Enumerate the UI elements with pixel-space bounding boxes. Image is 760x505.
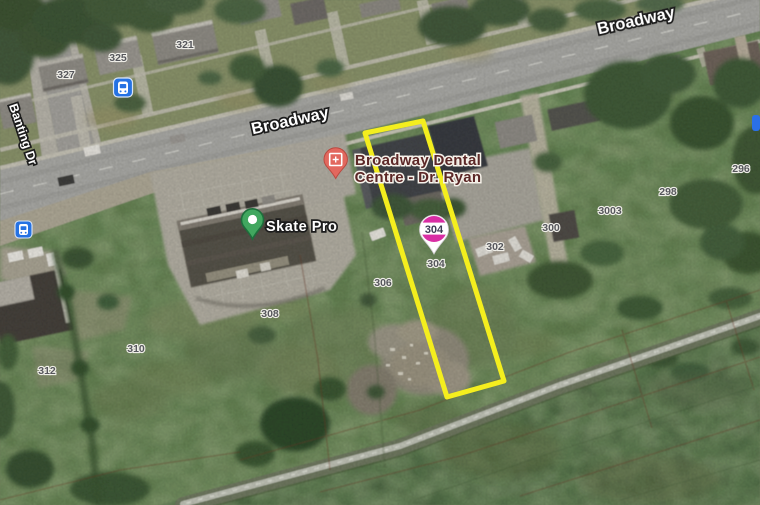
- svg-text:310: 310: [127, 343, 145, 355]
- svg-text:304: 304: [427, 258, 445, 270]
- svg-text:Centre - Dr. Ryan: Centre - Dr. Ryan: [355, 169, 482, 186]
- svg-text:3003: 3003: [598, 205, 622, 217]
- svg-text:300: 300: [542, 222, 560, 234]
- svg-text:325: 325: [109, 52, 127, 64]
- svg-text:306: 306: [374, 277, 392, 289]
- svg-text:321: 321: [176, 39, 194, 51]
- svg-text:298: 298: [659, 186, 677, 198]
- svg-text:304: 304: [425, 224, 444, 236]
- svg-text:Skate Pro: Skate Pro: [266, 219, 337, 235]
- svg-text:308: 308: [261, 308, 279, 320]
- svg-text:312: 312: [38, 365, 56, 377]
- svg-text:296: 296: [732, 163, 750, 175]
- svg-text:Broadway Dental: Broadway Dental: [355, 152, 481, 169]
- svg-text:327: 327: [57, 69, 75, 81]
- svg-text:302: 302: [486, 241, 504, 253]
